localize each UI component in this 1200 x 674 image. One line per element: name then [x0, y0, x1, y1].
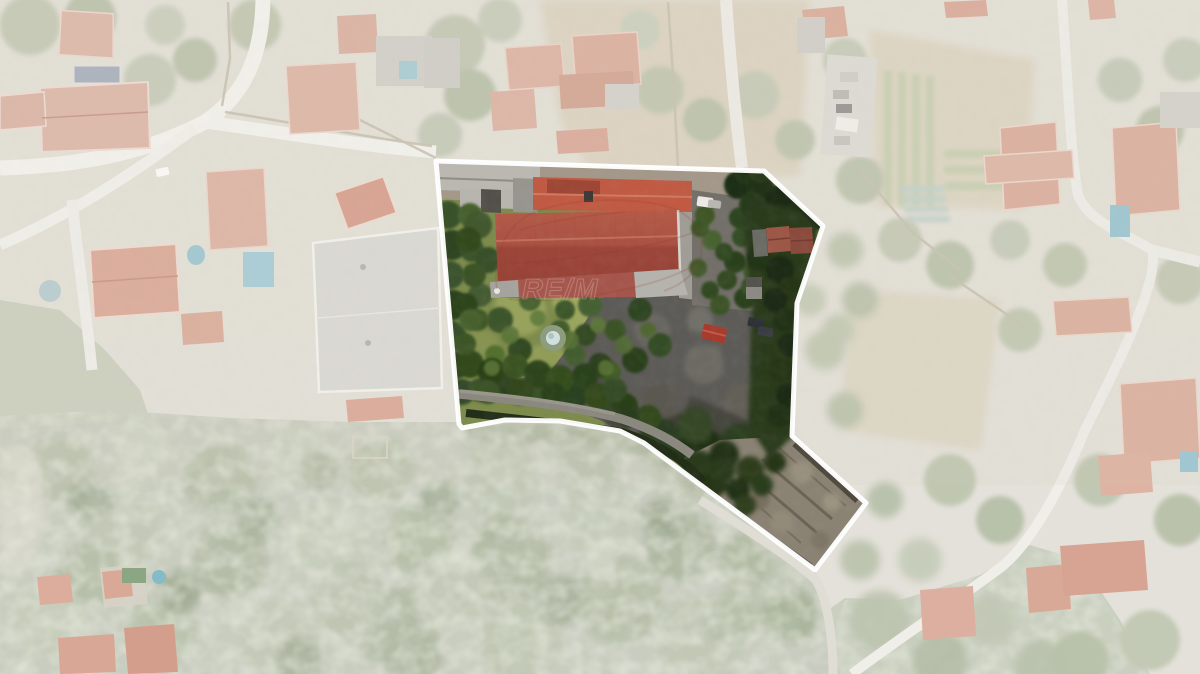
svg-text:RE/M: RE/M	[522, 274, 599, 306]
